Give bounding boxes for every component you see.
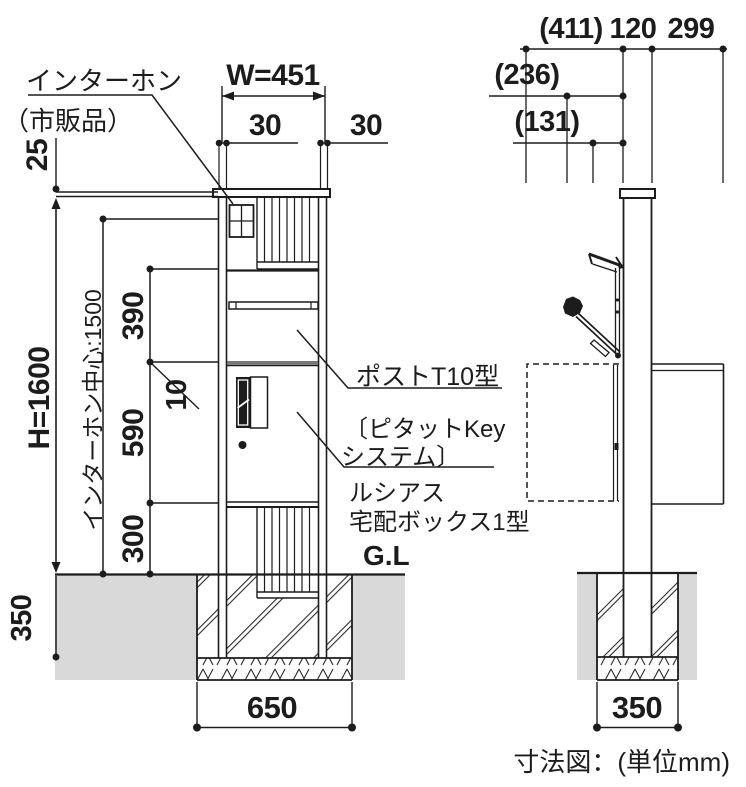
dim-gap-label: 10 <box>161 373 191 417</box>
key-system-label-line2: システム〕 <box>341 437 460 472</box>
product-label-line2: 宅配ボックス1型 <box>349 502 530 537</box>
intercom-label-line1: インターホン <box>26 61 182 98</box>
dim-embed-depth-label: 350 <box>6 586 36 650</box>
dim-post-depth-label: 120 <box>607 13 659 46</box>
dim-width-label: W=451 <box>208 59 338 93</box>
dim-front-depth-label: (236) <box>485 59 569 92</box>
dim-inner-depth-label: (131) <box>505 106 589 139</box>
dim-offset-right-label: 30 <box>341 109 391 143</box>
dim-footing-width-front-label: 650 <box>222 690 322 726</box>
front-footing-linework <box>55 575 405 681</box>
post-type-label: ポストT10型 <box>356 357 499 393</box>
dim-footing-width-side-label: 350 <box>587 690 687 726</box>
side-footing-linework <box>577 573 697 680</box>
dim-overall-depth-label: (411) <box>529 13 613 46</box>
dim-cap-height-label: 25 <box>21 130 53 180</box>
drawing-caption: 寸法図：(単位mm) <box>430 742 730 779</box>
dim-rear-depth-label: 299 <box>664 13 718 46</box>
ground-line-label: G.L <box>363 540 410 572</box>
dim-section-upper-label: 390 <box>117 286 149 346</box>
dim-total-height-label: H=1600 <box>23 333 57 463</box>
dimension-drawing-page: インターホン （市販品） W=451 30 30 25 H=1600 インターホ… <box>0 0 746 787</box>
dim-section-middle-label: 590 <box>117 403 149 463</box>
dim-offset-left-label: 30 <box>240 109 290 143</box>
dim-section-lower-label: 300 <box>117 509 149 569</box>
dim-intercom-center-label: インターホン中心:1500 <box>74 255 100 565</box>
